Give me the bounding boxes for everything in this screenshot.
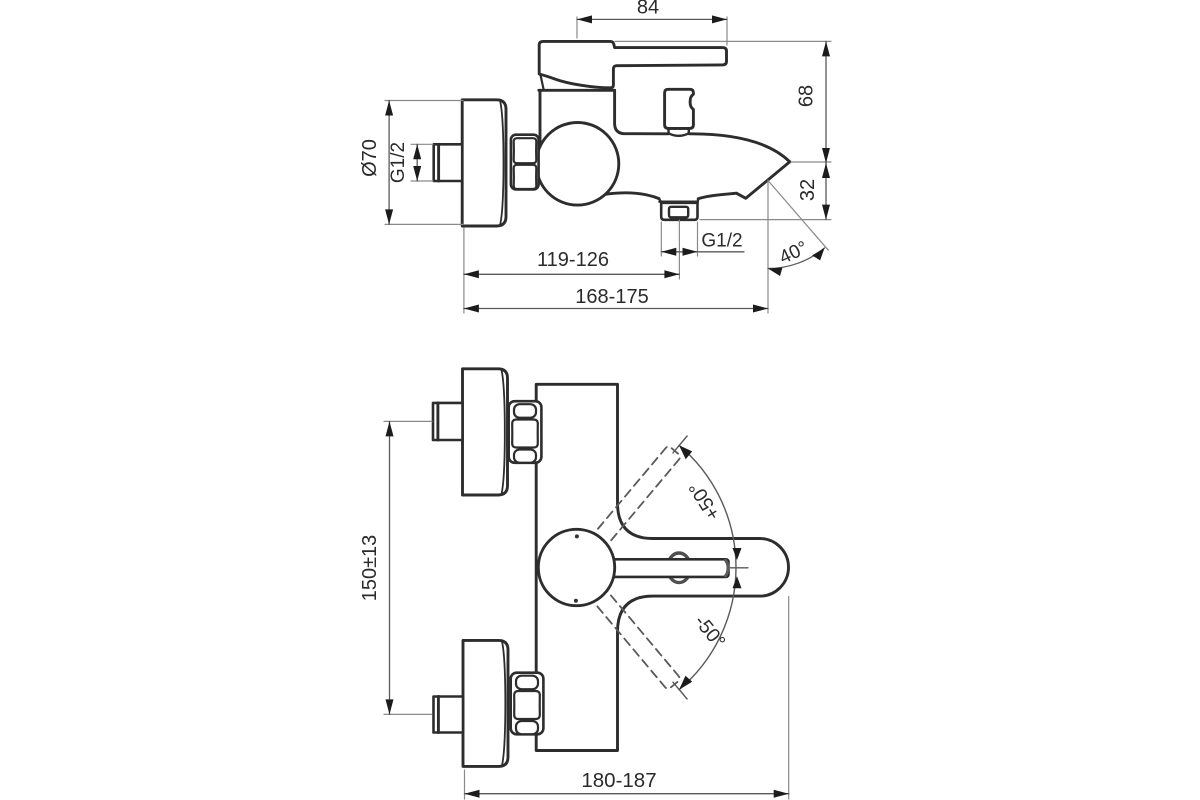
svg-text:168-175: 168-175 <box>575 286 648 308</box>
svg-text:Ø70: Ø70 <box>359 139 381 177</box>
svg-text:119-126: 119-126 <box>537 249 609 271</box>
svg-text:84: 84 <box>637 0 659 19</box>
svg-text:32: 32 <box>797 179 819 201</box>
svg-text:150±13: 150±13 <box>359 535 381 602</box>
svg-text:G1/2: G1/2 <box>388 142 409 183</box>
svg-text:G1/2: G1/2 <box>701 231 742 252</box>
svg-text:68: 68 <box>796 85 818 107</box>
svg-text:180-187: 180-187 <box>581 769 656 792</box>
